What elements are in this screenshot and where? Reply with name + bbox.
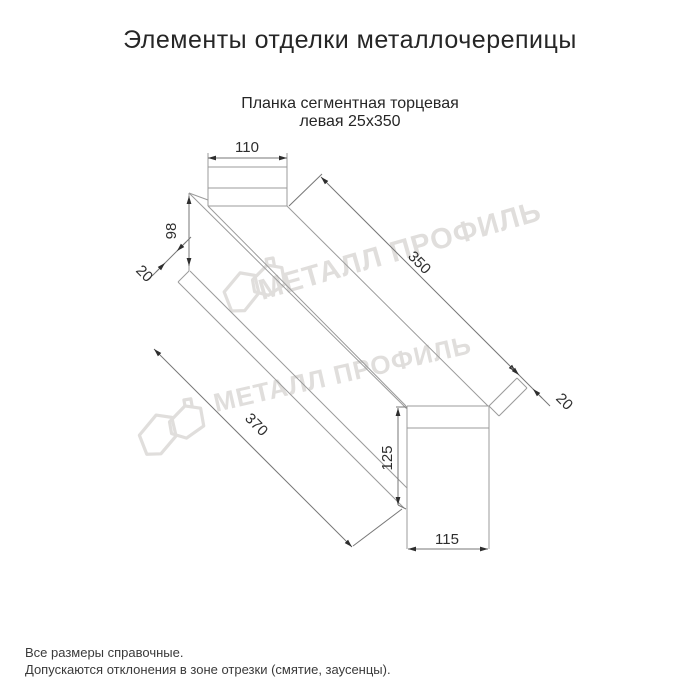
dim-length-bottom-label: 370: [241, 410, 271, 440]
metall-profil-logo-icon: [135, 397, 208, 457]
dim-bottom-width-label: 115: [435, 531, 459, 548]
dim-top-width-label: 110: [235, 139, 259, 156]
watermark-band-1: МЕТАЛЛ ПРОФИЛЬ: [220, 195, 545, 313]
watermark-text: МЕТАЛЛ ПРОФИЛЬ: [255, 195, 545, 306]
dimension-labels: 110 98 20 350 370 20 125 115: [132, 139, 576, 548]
watermark-text: МЕТАЛЛ ПРОФИЛЬ: [211, 329, 475, 418]
dim-left-flange-label: 20: [132, 262, 156, 286]
dim-right-height-label: 125: [379, 445, 396, 470]
watermark-band-2: МЕТАЛЛ ПРОФИЛЬ: [135, 329, 475, 457]
dim-left-height-label: 98: [163, 223, 180, 240]
footer-note-line2: Допускаются отклонения в зоне отрезки (с…: [25, 662, 391, 677]
technical-drawing: МЕТАЛЛ ПРОФИЛЬ МЕТАЛЛ ПРОФИЛЬ: [0, 0, 700, 700]
dim-right-flange-label: 20: [552, 390, 576, 414]
footer-note-line1: Все размеры справочные.: [25, 645, 183, 660]
